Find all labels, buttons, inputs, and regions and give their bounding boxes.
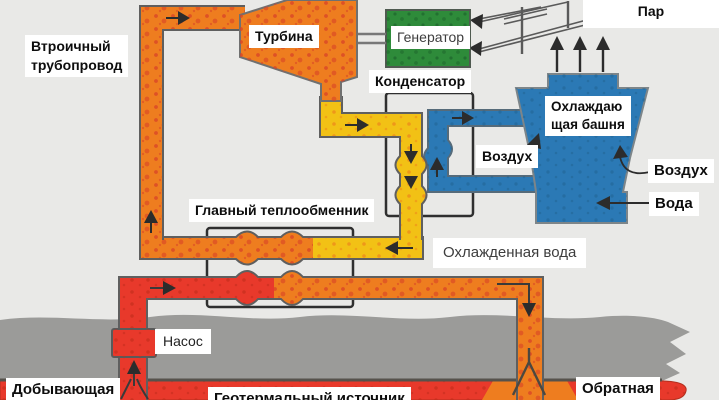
electricity-arrow-icon xyxy=(470,14,483,29)
label-pump: Насос xyxy=(155,329,211,354)
label-air-right: Воздух xyxy=(648,159,714,183)
label-main-heat-exchanger: Главный теплообменник xyxy=(189,199,374,222)
label-generator: Генератор xyxy=(391,26,470,49)
label-cooled-water: Охлажденная вода xyxy=(433,238,586,268)
label-geothermal-source: Геотермальный источник xyxy=(208,387,411,400)
label-secondary-pipeline: Втроичный трубопровод xyxy=(25,35,128,77)
label-turbine: Турбина xyxy=(249,25,319,48)
label-water: Вода xyxy=(649,192,699,216)
label-condenser: Конденсатор xyxy=(369,70,471,93)
secondary-hx-pipe xyxy=(135,222,425,274)
ground xyxy=(0,315,690,381)
steam-arrows-icon xyxy=(550,36,610,72)
pump-box xyxy=(112,329,156,357)
turbine-shape xyxy=(240,0,357,101)
turbine-shaft xyxy=(355,34,386,43)
label-return-well: Обратная xyxy=(576,377,660,400)
label-air-left: Воздух xyxy=(476,145,538,168)
label-cooling-tower: Охлаждаю щая башня xyxy=(545,96,631,136)
geothermal-plant-diagram: Пар Втроичный трубопровод Турбина Генера… xyxy=(0,0,719,400)
label-steam: Пар xyxy=(583,0,719,28)
label-production-well: Добывающая xyxy=(6,378,120,400)
